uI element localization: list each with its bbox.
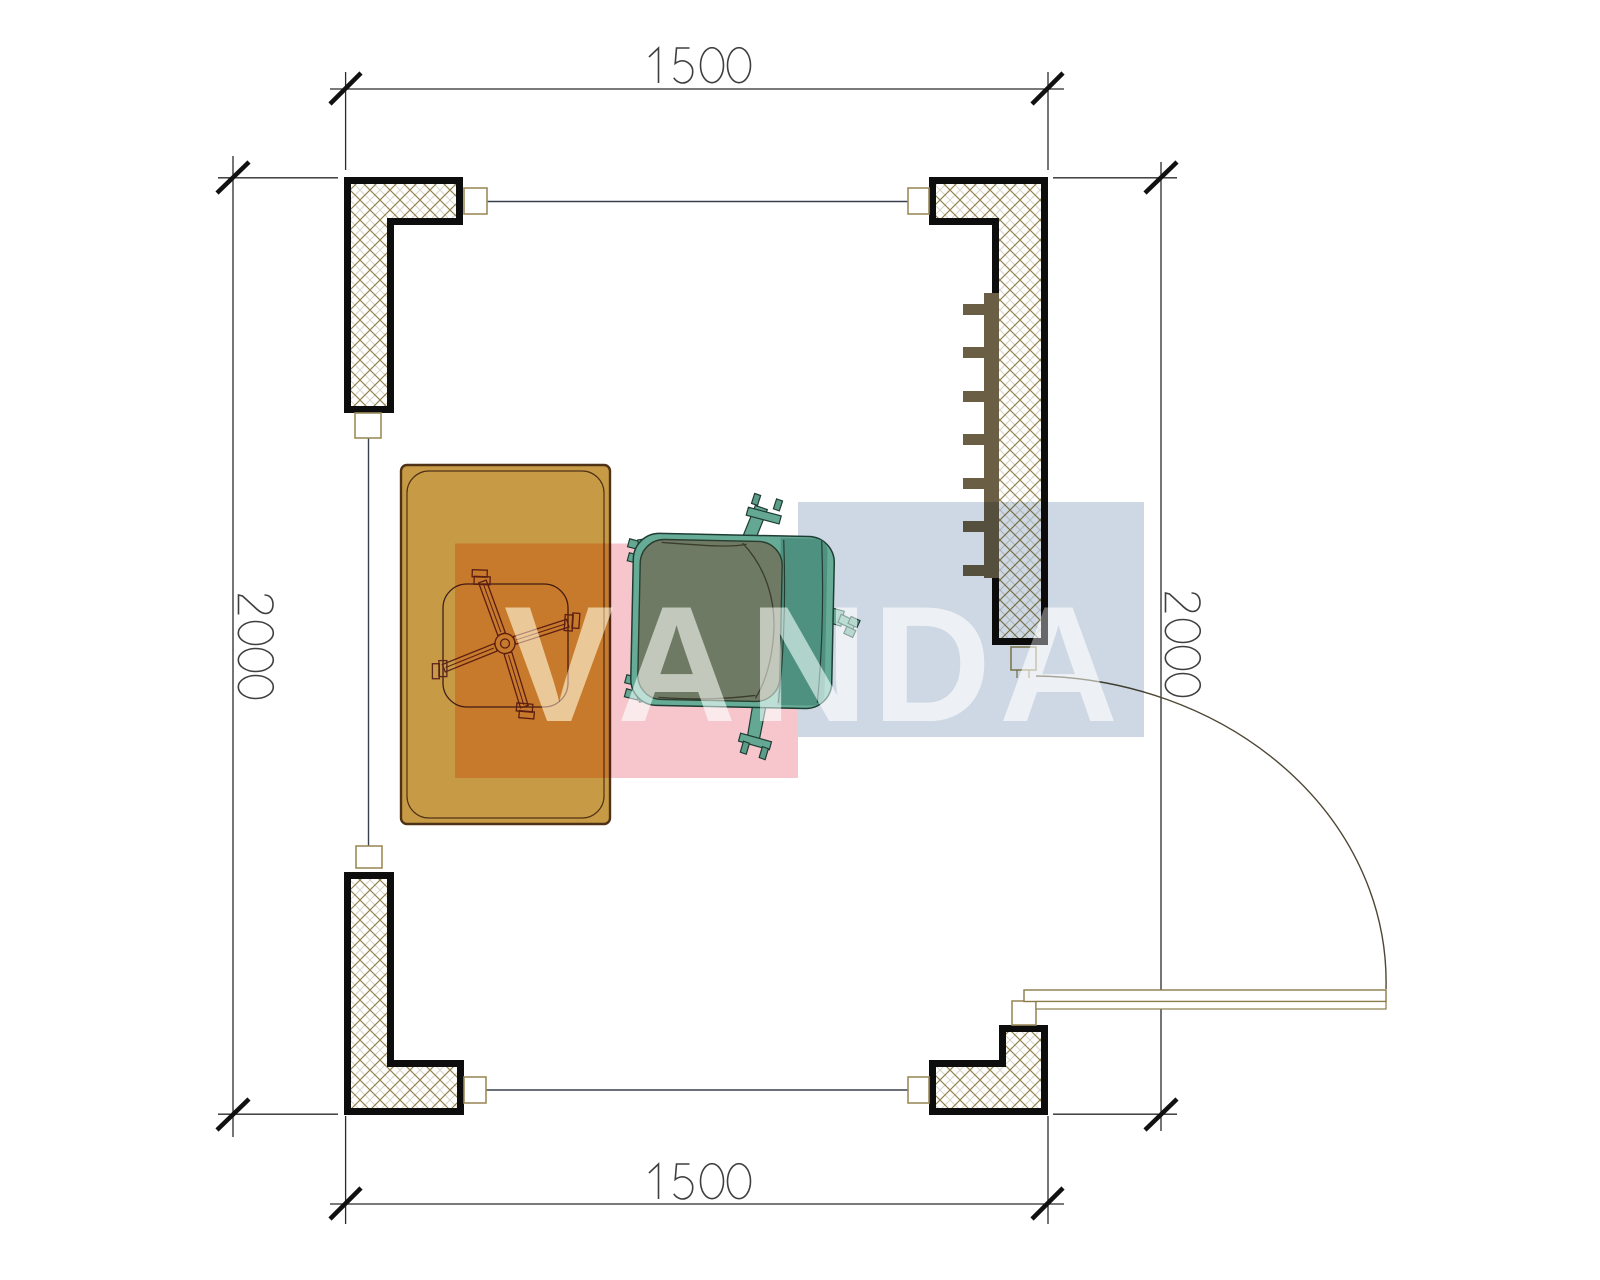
svg-text:VANDA: VANDA [504,572,1118,756]
